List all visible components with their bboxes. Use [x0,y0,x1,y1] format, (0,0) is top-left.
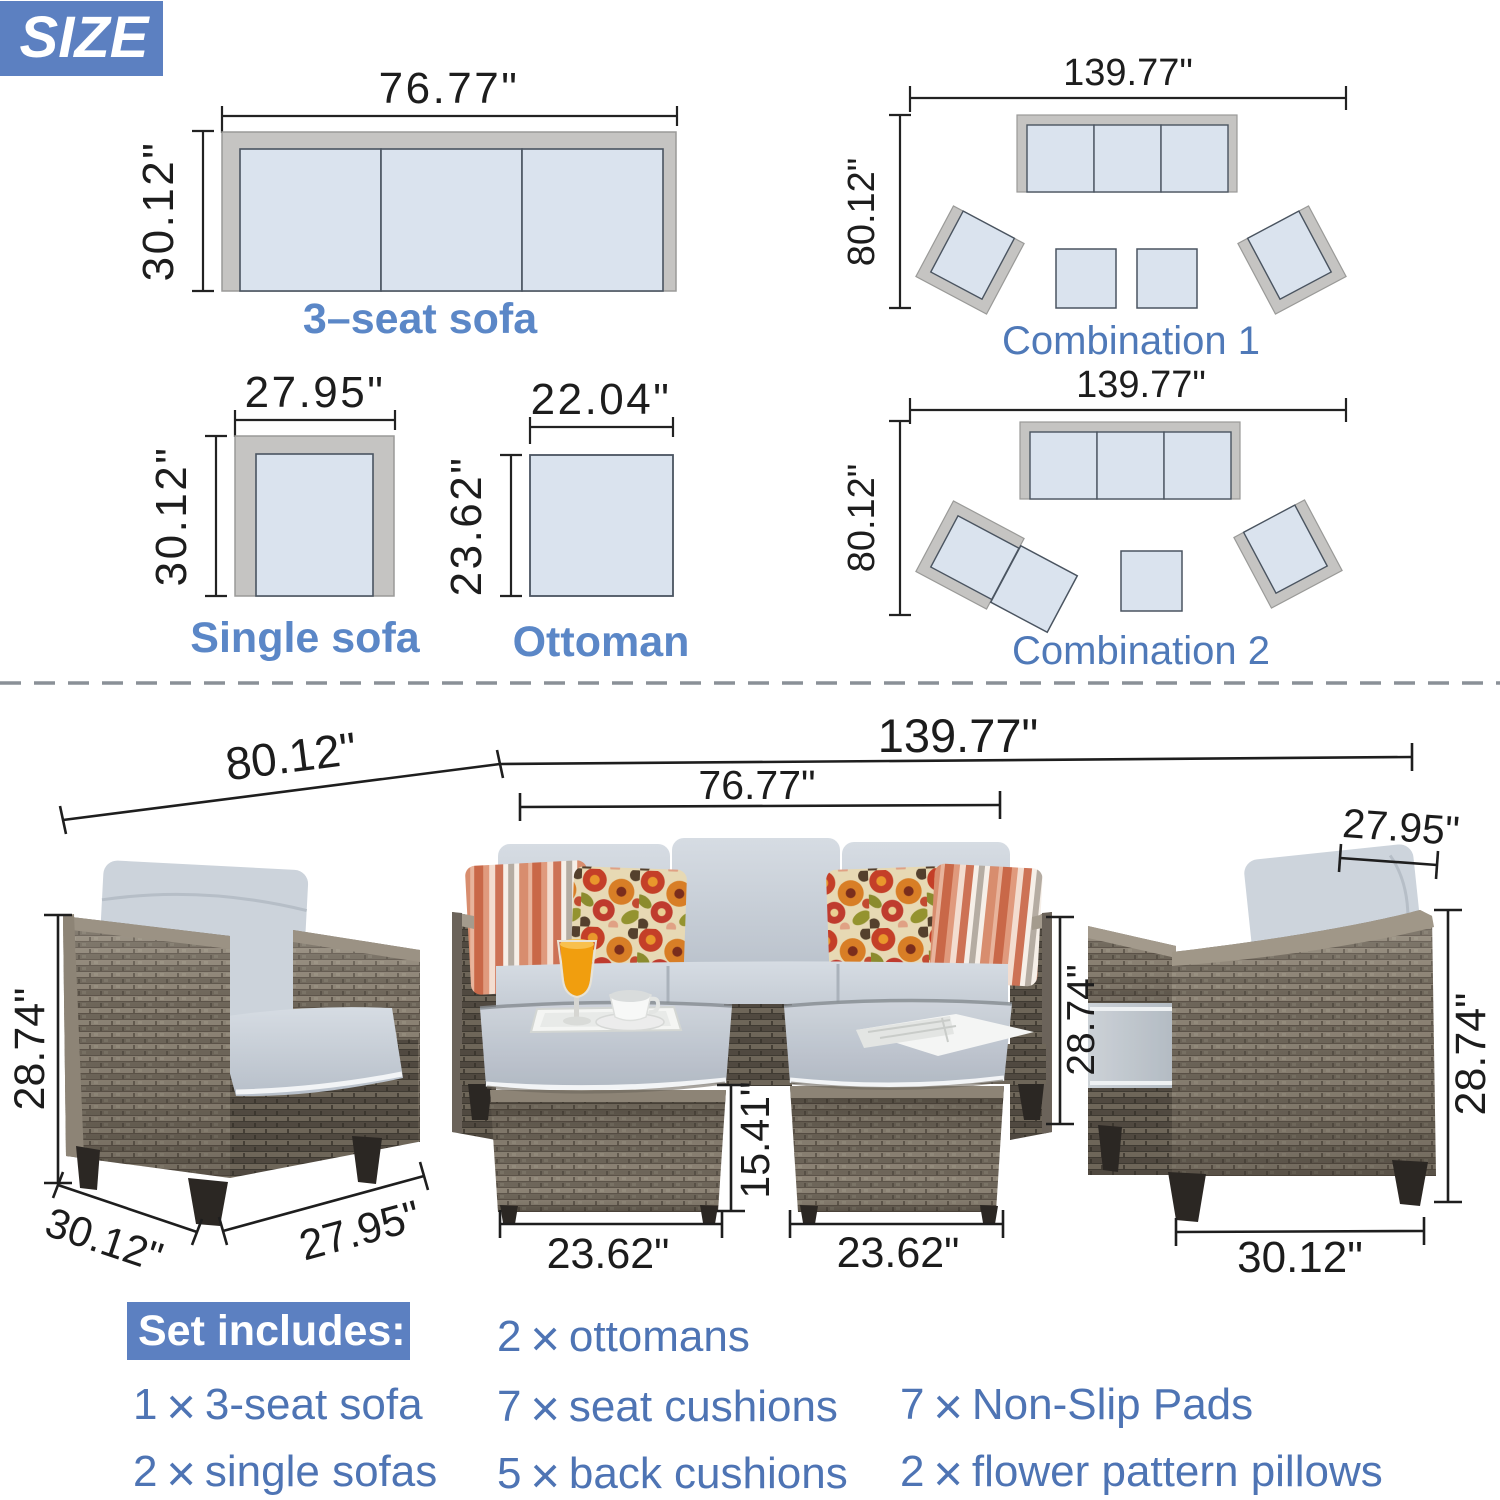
svg-text:30.12": 30.12" [134,141,183,282]
svg-text:30.12": 30.12" [147,446,196,587]
svg-text:SIZE: SIZE [20,5,151,70]
svg-text:139.77": 139.77" [1076,364,1206,406]
svg-text:7 × seat cushions: 7 × seat cushions [497,1380,838,1437]
svg-text:7 × Non-Slip Pads: 7 × Non-Slip Pads [900,1378,1253,1435]
svg-text:2 × flower pattern pillows: 2 × flower pattern pillows [900,1445,1383,1500]
svg-text:23.62": 23.62" [837,1229,960,1277]
svg-text:28.74": 28.74" [1060,964,1103,1075]
svg-text:23.62": 23.62" [547,1230,670,1278]
svg-text:76.77": 76.77" [698,762,815,808]
svg-text:23.62": 23.62" [442,456,491,597]
svg-text:Single sofa: Single sofa [190,614,420,662]
svg-text:28.74": 28.74" [1447,993,1495,1116]
svg-text:2 × ottomans: 2 × ottomans [497,1310,750,1367]
svg-text:2 × single sofas: 2 × single sofas [133,1445,437,1500]
svg-text:22.04": 22.04" [531,375,672,424]
svg-text:5 × back cushions: 5 × back cushions [497,1447,848,1500]
svg-text:1 × 3-seat sofa: 1 × 3-seat sofa [133,1378,423,1435]
svg-text:80.12": 80.12" [841,464,883,573]
svg-text:Combination 1: Combination 1 [1002,319,1260,363]
svg-text:76.77": 76.77" [379,64,520,113]
svg-text:Combination 2: Combination 2 [1012,629,1270,673]
svg-text:28.74": 28.74" [6,988,54,1111]
svg-text:27.95": 27.95" [245,368,386,417]
svg-text:139.77": 139.77" [878,709,1038,762]
svg-text:30.12": 30.12" [1237,1233,1363,1282]
svg-text:15.41": 15.41" [732,1081,778,1198]
svg-text:Set includes:: Set includes: [138,1307,406,1355]
svg-text:27.95": 27.95" [1341,800,1461,854]
svg-text:80.12": 80.12" [841,158,883,267]
svg-text:Ottoman: Ottoman [513,618,690,666]
svg-text:139.77": 139.77" [1063,52,1193,94]
svg-text:3–seat sofa: 3–seat sofa [303,295,538,343]
